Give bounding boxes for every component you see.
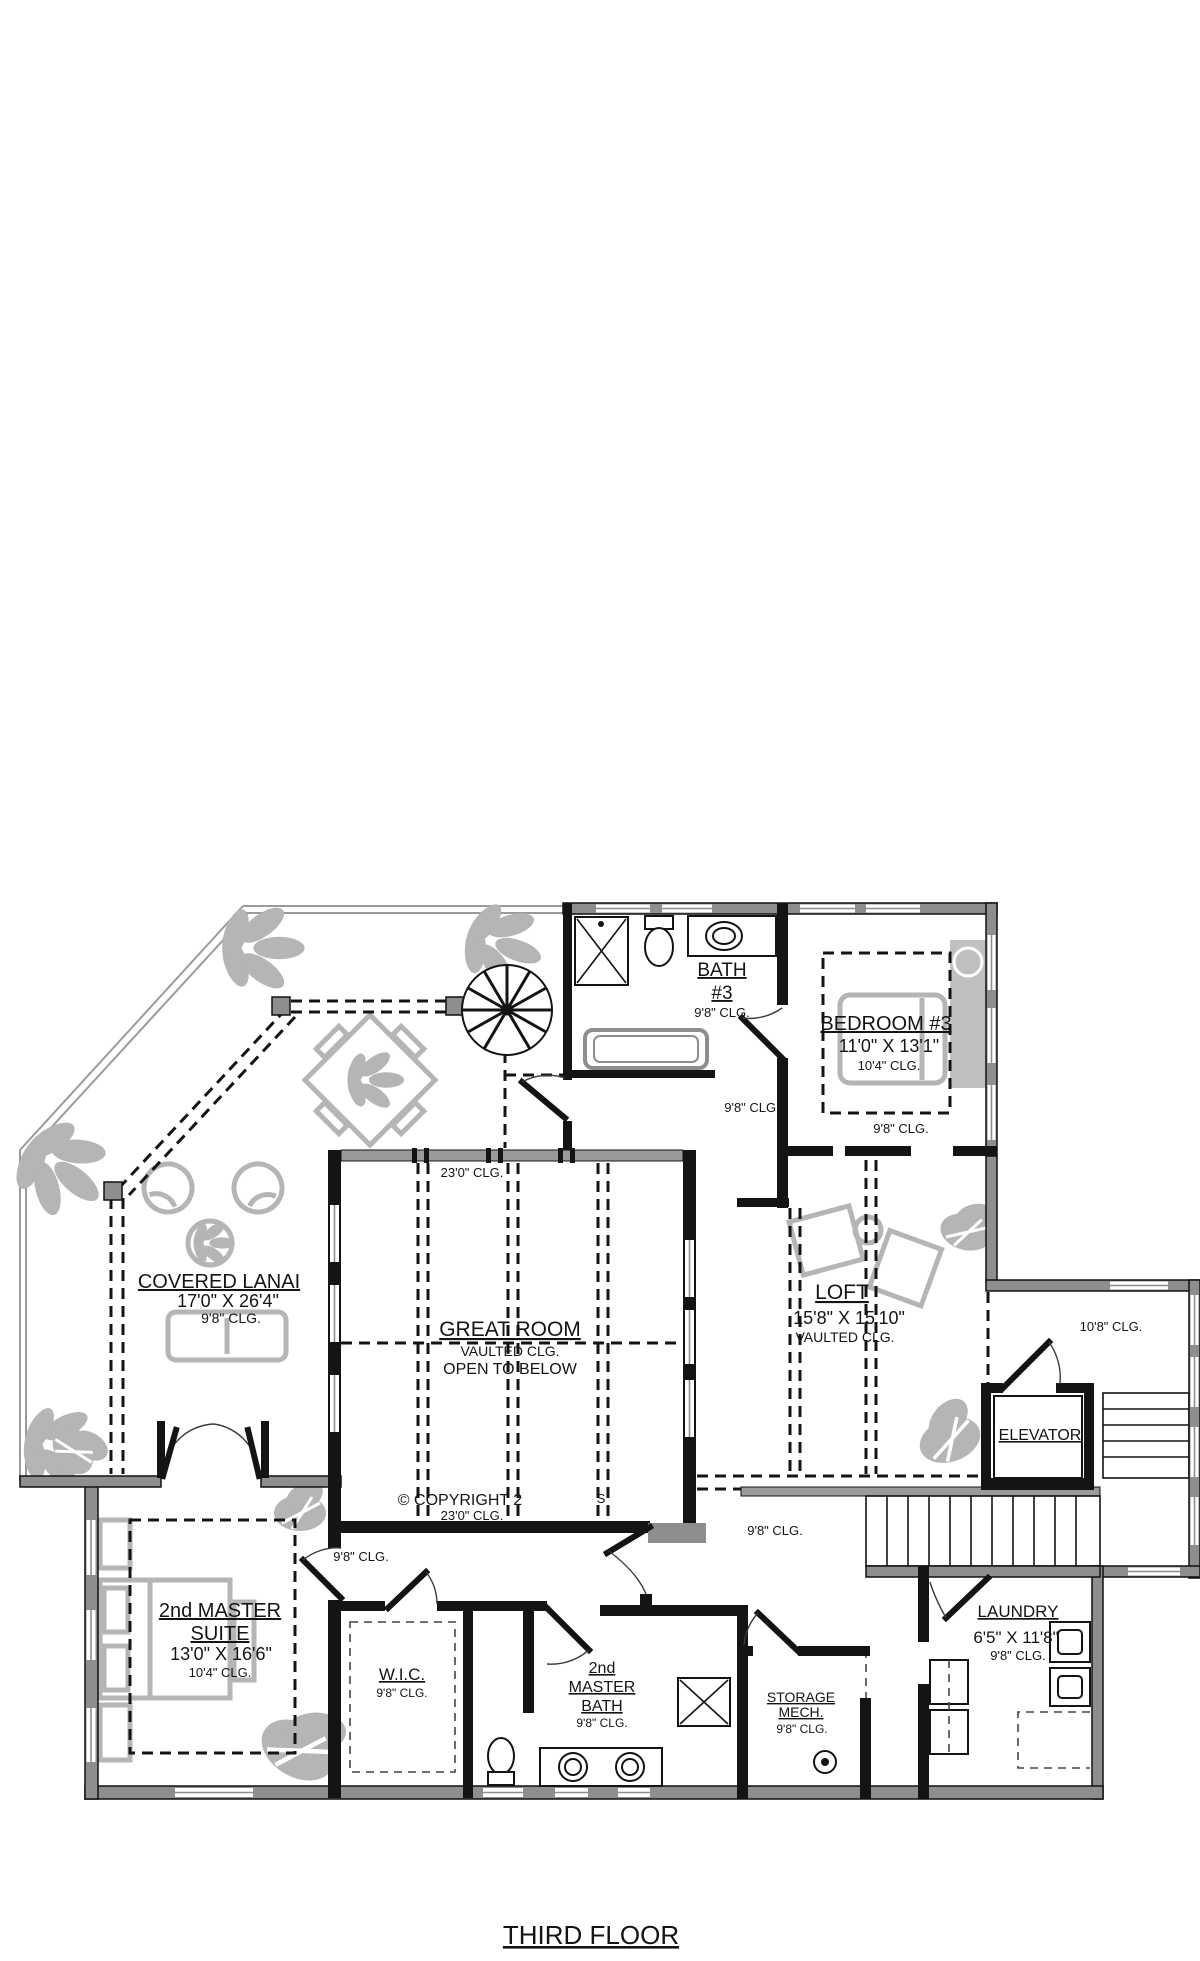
window [988,1008,996,1063]
label-mbath-name2: MASTER [569,1679,636,1696]
window [330,1375,339,1432]
label-bath3-name2: #3 [711,983,732,1004]
label-mbath-name3: BATH [581,1698,622,1715]
label-copyright: © COPYRIGHT 2 [398,1492,523,1509]
side-staircase [1103,1393,1189,1478]
label-elev-room-clg: 10'8" CLG. [1080,1319,1143,1334]
label-hall-right-clg: 9'8" CLG. [747,1523,803,1538]
starfish-icon [217,901,305,995]
window [330,1205,339,1262]
label-bath3-name1: BATH [697,960,746,981]
label-bedroom3-clg2: 9'8" CLG. [873,1121,929,1136]
toilet-tank [488,1772,514,1785]
window [1191,1497,1199,1545]
hall-door [609,1551,652,1608]
label-bedroom3-clg: 10'4" CLG. [858,1058,921,1073]
label-lanai-dims: 17'0" X 26'4" [177,1291,279,1311]
window [685,1240,694,1297]
window [662,905,712,913]
landing-door [522,1075,565,1118]
label-wic-name: W.I.C. [379,1665,425,1684]
label-bedroom3-name: BEDROOM #3 [820,1013,951,1035]
window [1191,1295,1199,1345]
label-greatroom-clg-bottom: 23'0" CLG. [441,1508,504,1523]
label-hall-top-clg: 9'8" CLG. [724,1100,780,1115]
window [800,905,855,913]
storage-door [744,1613,798,1651]
label-suite-name2: SUITE [191,1623,250,1645]
window [618,1788,650,1797]
label-greatroom-clg-top: 23'0" CLG. [441,1165,504,1180]
storage-fixtures [814,1751,836,1773]
label-greatroom-note2: OPEN TO BELOW [443,1361,578,1378]
label-laundry-clg: 9'8" CLG. [990,1648,1046,1663]
label-lanai-name: COVERED LANAI [138,1271,300,1293]
lanai-seating [136,1156,289,1360]
window [87,1520,96,1575]
lanai-double-door [163,1424,259,1476]
window [483,1788,523,1797]
window [866,905,920,913]
window [87,1708,96,1762]
label-greatroom-note1: VAULTED CLG. [460,1343,559,1359]
label-storage-name2: MECH. [778,1704,823,1720]
label-loft-dims: 15'8" X 15'10" [793,1308,905,1328]
label-storage-clg: 9'8" CLG. [776,1722,827,1736]
window [596,905,650,913]
label-mbath-name1: 2nd [589,1660,616,1677]
window [988,1085,996,1140]
label-suite-name1: 2nd MASTER [159,1600,281,1622]
label-loft-name: LOFT [815,1281,869,1304]
window [988,935,996,990]
window [1191,1427,1199,1477]
window [685,1310,694,1364]
label-storage-name1: STORAGE [767,1689,835,1705]
toilet [645,928,673,966]
laundry-counter [1018,1712,1090,1768]
window [555,1788,588,1797]
nightstand [100,1520,130,1568]
label-greatroom-name: GREAT ROOM [439,1318,581,1341]
label-bath3-clg: 9'8" CLG. [694,1005,750,1020]
label-sheet-title: THIRD FLOOR [503,1920,679,1950]
label-laundry-name: LAUNDRY [978,1602,1059,1621]
label-lanai-clg: 9'8" CLG. [201,1310,261,1326]
window [175,1788,253,1797]
wic-door [388,1572,437,1608]
dryer [1050,1668,1090,1706]
label-suite-clg: 10'4" CLG. [189,1665,252,1680]
lanai-dining-set [285,995,455,1165]
nightstand [100,1705,130,1760]
greatroom-top-band [341,1148,683,1163]
spiral-staircase [462,965,552,1055]
window [685,1380,694,1437]
label-wic-clg: 9'8" CLG. [376,1686,427,1700]
label-laundry-dims: 6'5" X 11'8" [973,1628,1058,1647]
label-bedroom3-dims: 11'0" X 13'1" [839,1036,939,1056]
label-mbath-clg: 9'8" CLG. [576,1716,627,1730]
label-suite-dims: 13'0" X 16'6" [170,1644,272,1664]
label-elevator-name: ELEVATOR [999,1427,1082,1444]
lanai-post [272,997,290,1015]
master-bath-door [547,1608,589,1664]
window [330,1285,339,1342]
window [87,1610,96,1660]
window [1128,1568,1180,1576]
floor-plan-sheet: THIRD FLOOR [0,0,1200,1961]
bath3-fixtures [575,916,776,1068]
stair-railing [737,1198,789,1207]
toilet [488,1738,514,1774]
label-loft-clg: VAULTED CLG. [795,1329,894,1345]
label-copyright-frag: S [597,1491,606,1506]
label-hall-left-clg: 9'8" CLG. [333,1549,389,1564]
floor-plan-drawing: THIRD FLOOR [0,0,1200,1961]
elevator-lobby-door [1003,1342,1060,1388]
palm-icon [905,1386,989,1471]
palm-icon [251,1682,363,1795]
window [1191,1357,1199,1407]
window [1110,1282,1168,1290]
lanai-post [104,1182,122,1200]
